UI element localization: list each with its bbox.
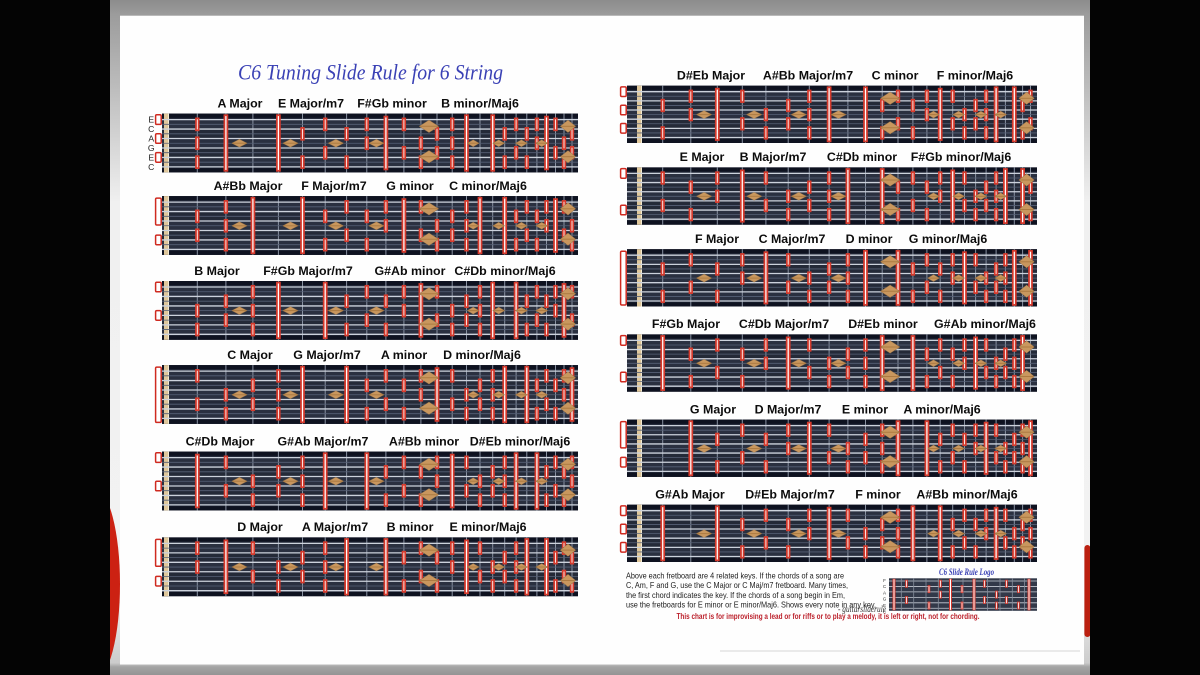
svg-text:D#Eb minor/Maj6: D#Eb minor/Maj6 — [470, 434, 571, 448]
svg-text:C minor: C minor — [872, 69, 919, 83]
svg-text:E: E — [148, 115, 154, 125]
svg-text:F: F — [883, 578, 886, 583]
svg-text:F#Gb Major/m7: F#Gb Major/m7 — [263, 264, 353, 278]
svg-text:A#Bb Major: A#Bb Major — [214, 179, 283, 193]
svg-text:the first chord indicates the: the first chord indicates the key. If th… — [626, 590, 845, 600]
svg-text:D#Eb minor: D#Eb minor — [848, 317, 918, 331]
svg-text:E Major: E Major — [680, 150, 725, 164]
svg-text:A minor: A minor — [381, 348, 428, 362]
svg-text:C minor/Maj6: C minor/Maj6 — [449, 179, 527, 193]
svg-text:D Major: D Major — [237, 520, 283, 534]
svg-text:F#Gb Major: F#Gb Major — [652, 317, 720, 331]
svg-text:B minor/Maj6: B minor/Maj6 — [441, 96, 519, 110]
svg-text:G Major: G Major — [690, 402, 736, 416]
svg-text:G#Ab minor/Maj6: G#Ab minor/Maj6 — [934, 317, 1036, 331]
svg-text:C#Db minor: C#Db minor — [827, 150, 897, 164]
svg-text:D#Eb Major/m7: D#Eb Major/m7 — [745, 488, 835, 502]
svg-text:A minor/Maj6: A minor/Maj6 — [903, 402, 980, 416]
svg-text:F Major/m7: F Major/m7 — [301, 179, 367, 193]
svg-text:E Major/m7: E Major/m7 — [278, 96, 344, 110]
svg-text:C6 Slide Rule Logo: C6 Slide Rule Logo — [939, 567, 994, 577]
svg-text:C: C — [148, 162, 154, 172]
svg-text:G#Ab Major/m7: G#Ab Major/m7 — [278, 434, 369, 448]
svg-text:Above each fretboard are 4 rel: Above each fretboard are 4 related keys.… — [626, 570, 844, 580]
svg-text:F minor: F minor — [855, 488, 901, 502]
svg-text:A Major/m7: A Major/m7 — [302, 520, 368, 534]
svg-text:G: G — [883, 597, 887, 602]
svg-text:G minor/Maj6: G minor/Maj6 — [909, 232, 988, 246]
svg-text:B Major/m7: B Major/m7 — [740, 150, 807, 164]
svg-text:C#Db Major: C#Db Major — [186, 434, 255, 448]
svg-text:G minor: G minor — [386, 179, 434, 193]
svg-text:B minor: B minor — [387, 520, 434, 534]
svg-text:G#Ab minor: G#Ab minor — [375, 264, 446, 278]
svg-text:This chart is for improvising: This chart is for improvising a lead or … — [677, 611, 980, 621]
svg-text:C#Db minor/Maj6: C#Db minor/Maj6 — [454, 264, 555, 278]
svg-text:D#Eb Major: D#Eb Major — [677, 69, 745, 83]
svg-text:E minor: E minor — [842, 402, 888, 416]
svg-text:G Major/m7: G Major/m7 — [293, 348, 361, 362]
svg-text:D Major/m7: D Major/m7 — [755, 402, 822, 416]
svg-text:A#Bb minor: A#Bb minor — [389, 434, 459, 448]
svg-text:A#Bb Major/m7: A#Bb Major/m7 — [763, 69, 853, 83]
svg-text:C, Am, F and G, use the C Majo: C, Am, F and G, use the C Major or C Maj… — [626, 580, 848, 590]
svg-text:F#Gb minor/Maj6: F#Gb minor/Maj6 — [911, 150, 1012, 164]
svg-text:E minor/Maj6: E minor/Maj6 — [449, 520, 526, 534]
svg-text:E: E — [148, 152, 154, 162]
svg-text:G#Ab Major: G#Ab Major — [655, 488, 725, 502]
svg-text:C Major/m7: C Major/m7 — [759, 232, 826, 246]
svg-text:A#Bb minor/Maj6: A#Bb minor/Maj6 — [916, 488, 1017, 502]
svg-text:F minor/Maj6: F minor/Maj6 — [937, 69, 1014, 83]
svg-text:B Major: B Major — [194, 264, 240, 278]
svg-text:A Major: A Major — [218, 96, 263, 110]
svg-text:F#Gb minor: F#Gb minor — [357, 96, 427, 110]
svg-text:F Major: F Major — [695, 232, 739, 246]
svg-text:D minor/Maj6: D minor/Maj6 — [443, 348, 521, 362]
svg-text:C6 Tuning Slide Rule for 6 Str: C6 Tuning Slide Rule for 6 String — [238, 60, 503, 85]
svg-text:C#Db Major/m7: C#Db Major/m7 — [739, 317, 829, 331]
svg-text:C Major: C Major — [227, 348, 273, 362]
svg-text:D minor: D minor — [846, 232, 893, 246]
svg-text:A: A — [148, 134, 154, 144]
svg-text:E: E — [883, 603, 886, 608]
